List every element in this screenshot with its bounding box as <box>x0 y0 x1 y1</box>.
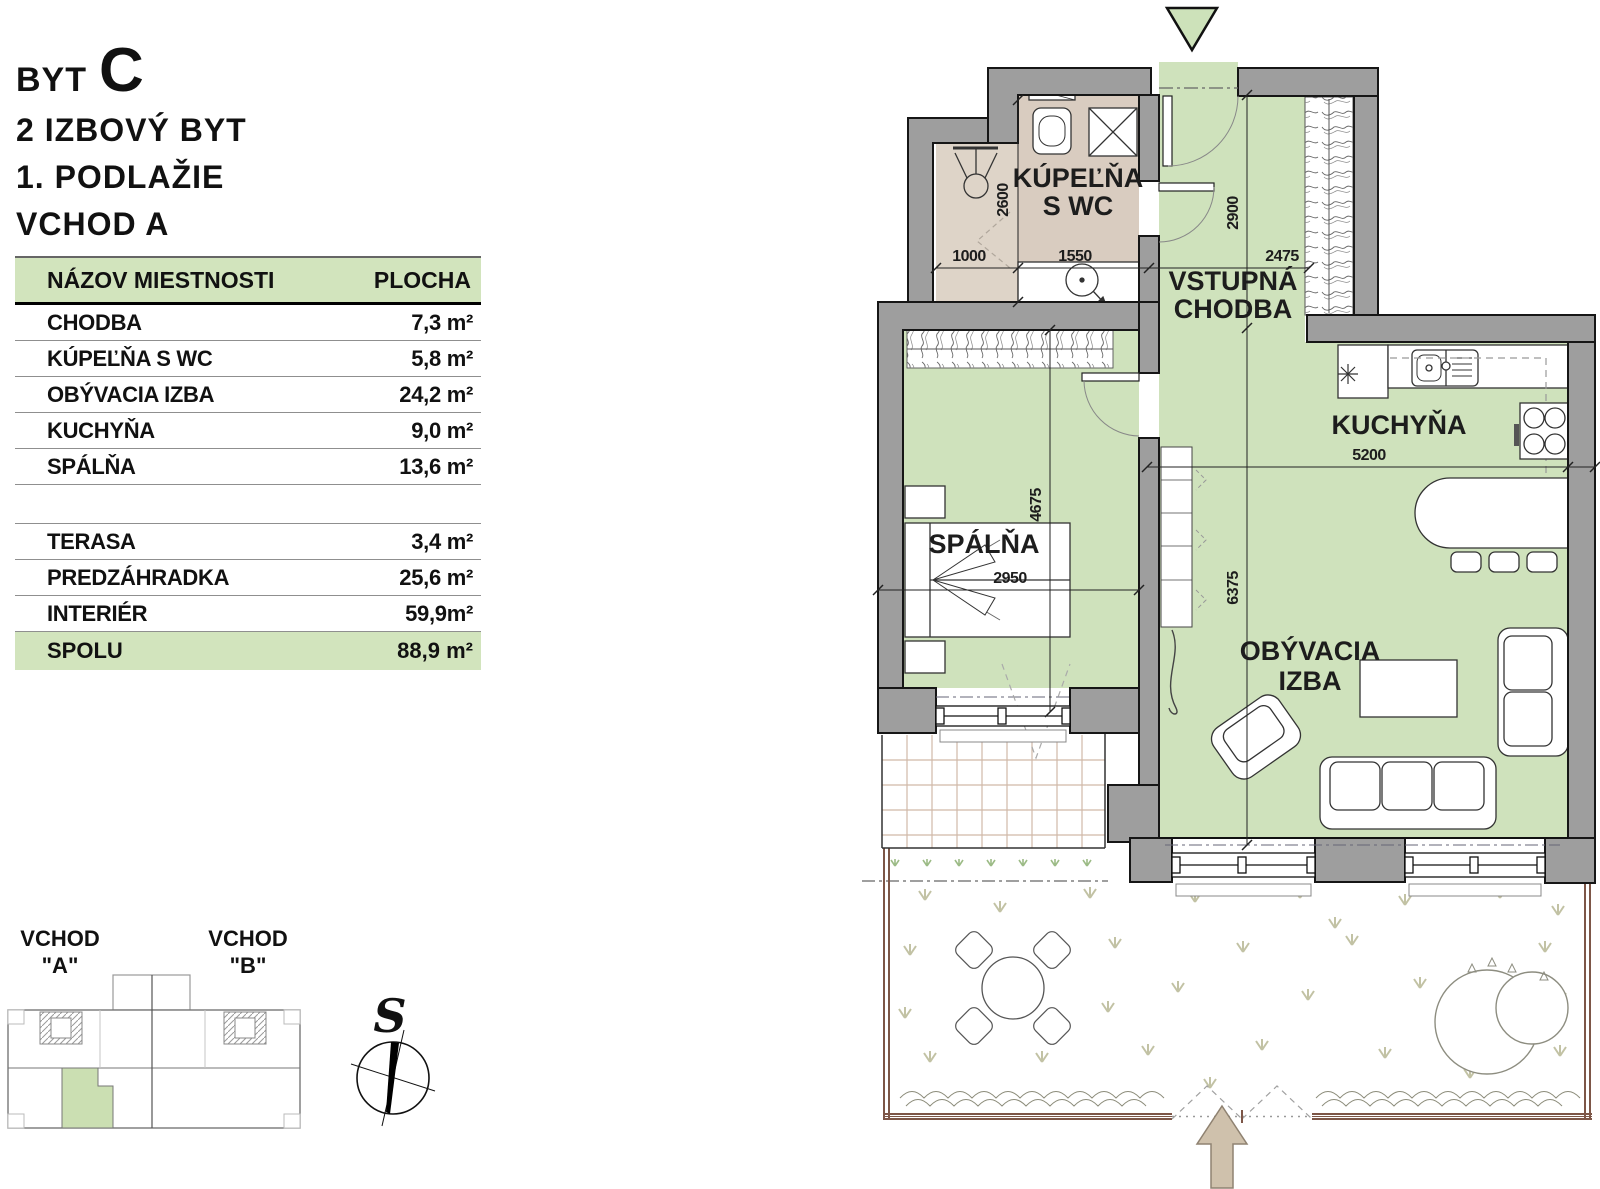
row-label: KUCHYŇA <box>15 418 155 444</box>
column-room-name: NÁZOV MIESTNOSTI <box>15 267 274 294</box>
entrance-marker-icon <box>1167 8 1217 50</box>
dim-shower-width: 1000 <box>952 248 986 265</box>
dim-bathroom-depth: 2600 <box>995 183 1012 217</box>
column-area: PLOCHA <box>374 267 481 294</box>
row-value: 59,9m² <box>405 601 481 627</box>
row-label: PREDZÁHRADKA <box>15 565 229 591</box>
label-living-line2: IZBA <box>1279 666 1342 696</box>
garden-chair <box>953 1005 995 1047</box>
row-label: INTERIÉR <box>15 601 147 627</box>
bar-stool <box>1527 552 1557 572</box>
entrance-b-id: "B" <box>230 953 267 978</box>
title-block: BYT C 2 IZBOVÝ BYT 1. PODLAŽIE VCHOD A <box>16 40 486 243</box>
loveseat <box>1498 628 1568 756</box>
compass-icon: S <box>351 989 435 1126</box>
dim-hall-depth: 2900 <box>1225 196 1242 230</box>
label-bathroom-line2: S WC <box>1043 191 1114 221</box>
garden-chair <box>1031 1005 1073 1047</box>
hob-asterisk-icon <box>1338 364 1358 384</box>
table-row: PREDZÁHRADKA 25,6 m² <box>15 560 481 596</box>
apartment-entrance: VCHOD A <box>16 206 486 243</box>
label-bathroom-line1: KÚPEĽŇA <box>1013 162 1144 193</box>
building-outline <box>8 975 300 1128</box>
sofa <box>1320 757 1496 829</box>
bar-stool <box>1451 552 1481 572</box>
table-row: TERASA 3,4 m² <box>15 524 481 560</box>
nightstand <box>905 641 945 673</box>
entrance-a-label: VCHOD <box>20 926 99 951</box>
row-value: 3,4 m² <box>411 529 481 555</box>
label-hall-line2: CHODBA <box>1174 294 1293 324</box>
entrance-a-id: "A" <box>42 953 79 978</box>
row-value: 13,6 m² <box>399 454 481 480</box>
bar-stool <box>1489 552 1519 572</box>
total-value: 88,9 m² <box>397 638 481 664</box>
dim-bathroom-width: 1550 <box>1058 248 1092 265</box>
bedroom-wardrobe <box>907 330 1113 368</box>
stove <box>1514 403 1568 459</box>
dim-hall-width: 2475 <box>1265 248 1299 265</box>
shower-floor <box>936 143 1018 302</box>
hall-wardrobe <box>1305 97 1353 315</box>
staircase-core-a <box>40 1012 82 1044</box>
label-kitchen: KUCHYŇA <box>1332 409 1467 440</box>
staircase-core-b <box>224 1012 266 1044</box>
living-window-left <box>1172 853 1315 896</box>
floor-plan: 1000 1550 2475 2600 2900 5200 2950 4675 … <box>850 0 1600 1189</box>
row-value: 7,3 m² <box>411 310 481 336</box>
nightstand <box>905 486 945 518</box>
kitchen-sink <box>1412 350 1478 386</box>
table-row: CHODBA 7,3 m² <box>15 305 481 341</box>
label-bedroom: SPÁLŇA <box>928 528 1039 559</box>
dim-bedroom-width: 2950 <box>993 570 1027 587</box>
floorplan-sheet: BYT C 2 IZBOVÝ BYT 1. PODLAŽIE VCHOD A N… <box>0 0 1600 1189</box>
row-value: 9,0 m² <box>411 418 481 444</box>
shrub-borders <box>900 1092 1580 1107</box>
garden-gate <box>1172 1086 1312 1123</box>
dim-kitchen-width: 5200 <box>1352 447 1386 464</box>
garden-chair <box>953 929 995 971</box>
apartment-title-prefix: BYT <box>16 61 87 100</box>
compass-north-letter: S <box>373 989 406 1043</box>
row-label: CHODBA <box>15 310 142 336</box>
row-label: KÚPEĽŇA S WC <box>15 346 212 372</box>
garden-chair <box>1031 929 1073 971</box>
table-spacer-row <box>15 485 481 524</box>
living-window-right <box>1405 853 1545 896</box>
table-row: KÚPEĽŇA S WC 5,8 m² <box>15 341 481 377</box>
total-label: SPOLU <box>15 638 123 664</box>
apartment-title: BYT C <box>16 40 486 102</box>
row-value: 25,6 m² <box>399 565 481 591</box>
kitchen-island <box>1415 478 1568 548</box>
garden-entry-arrow-icon <box>1197 1106 1247 1188</box>
coffee-table <box>1360 660 1457 717</box>
label-living-line1: OBÝVACIA <box>1240 635 1381 666</box>
terrace <box>882 733 1105 866</box>
table-row: SPÁLŇA 13,6 m² <box>15 449 481 485</box>
dim-bedroom-depth: 4675 <box>1028 488 1045 522</box>
table-row: OBÝVACIA IZBA 24,2 m² <box>15 377 481 413</box>
table-row: INTERIÉR 59,9m² <box>15 596 481 632</box>
garden-round-table <box>982 957 1044 1019</box>
dim-living-depth: 6375 <box>1225 571 1242 605</box>
terrace-edge-plants <box>891 859 1091 866</box>
row-label: OBÝVACIA IZBA <box>15 382 214 408</box>
area-table: NÁZOV MIESTNOSTI PLOCHA CHODBA 7,3 m² KÚ… <box>15 256 481 670</box>
row-value: 5,8 m² <box>411 346 481 372</box>
table-total-row: SPOLU 88,9 m² <box>15 632 481 670</box>
washing-machine <box>1089 108 1137 156</box>
row-value: 24,2 m² <box>399 382 481 408</box>
bushes <box>1435 958 1568 1074</box>
row-label: SPÁLŇA <box>15 454 136 480</box>
entrance-b-label: VCHOD <box>208 926 287 951</box>
apartment-type: 2 IZBOVÝ BYT <box>16 112 486 149</box>
garden-table-set <box>953 929 1073 1047</box>
label-hall-line1: VSTUPNÁ <box>1168 265 1297 296</box>
apartment-title-letter: C <box>99 40 144 102</box>
key-plan: VCHOD "A" VCHOD "B" S <box>0 900 450 1189</box>
table-row: KUCHYŇA 9,0 m² <box>15 413 481 449</box>
apartment-floor: 1. PODLAŽIE <box>16 159 486 196</box>
row-label: TERASA <box>15 529 136 555</box>
area-table-header: NÁZOV MIESTNOSTI PLOCHA <box>15 258 481 305</box>
